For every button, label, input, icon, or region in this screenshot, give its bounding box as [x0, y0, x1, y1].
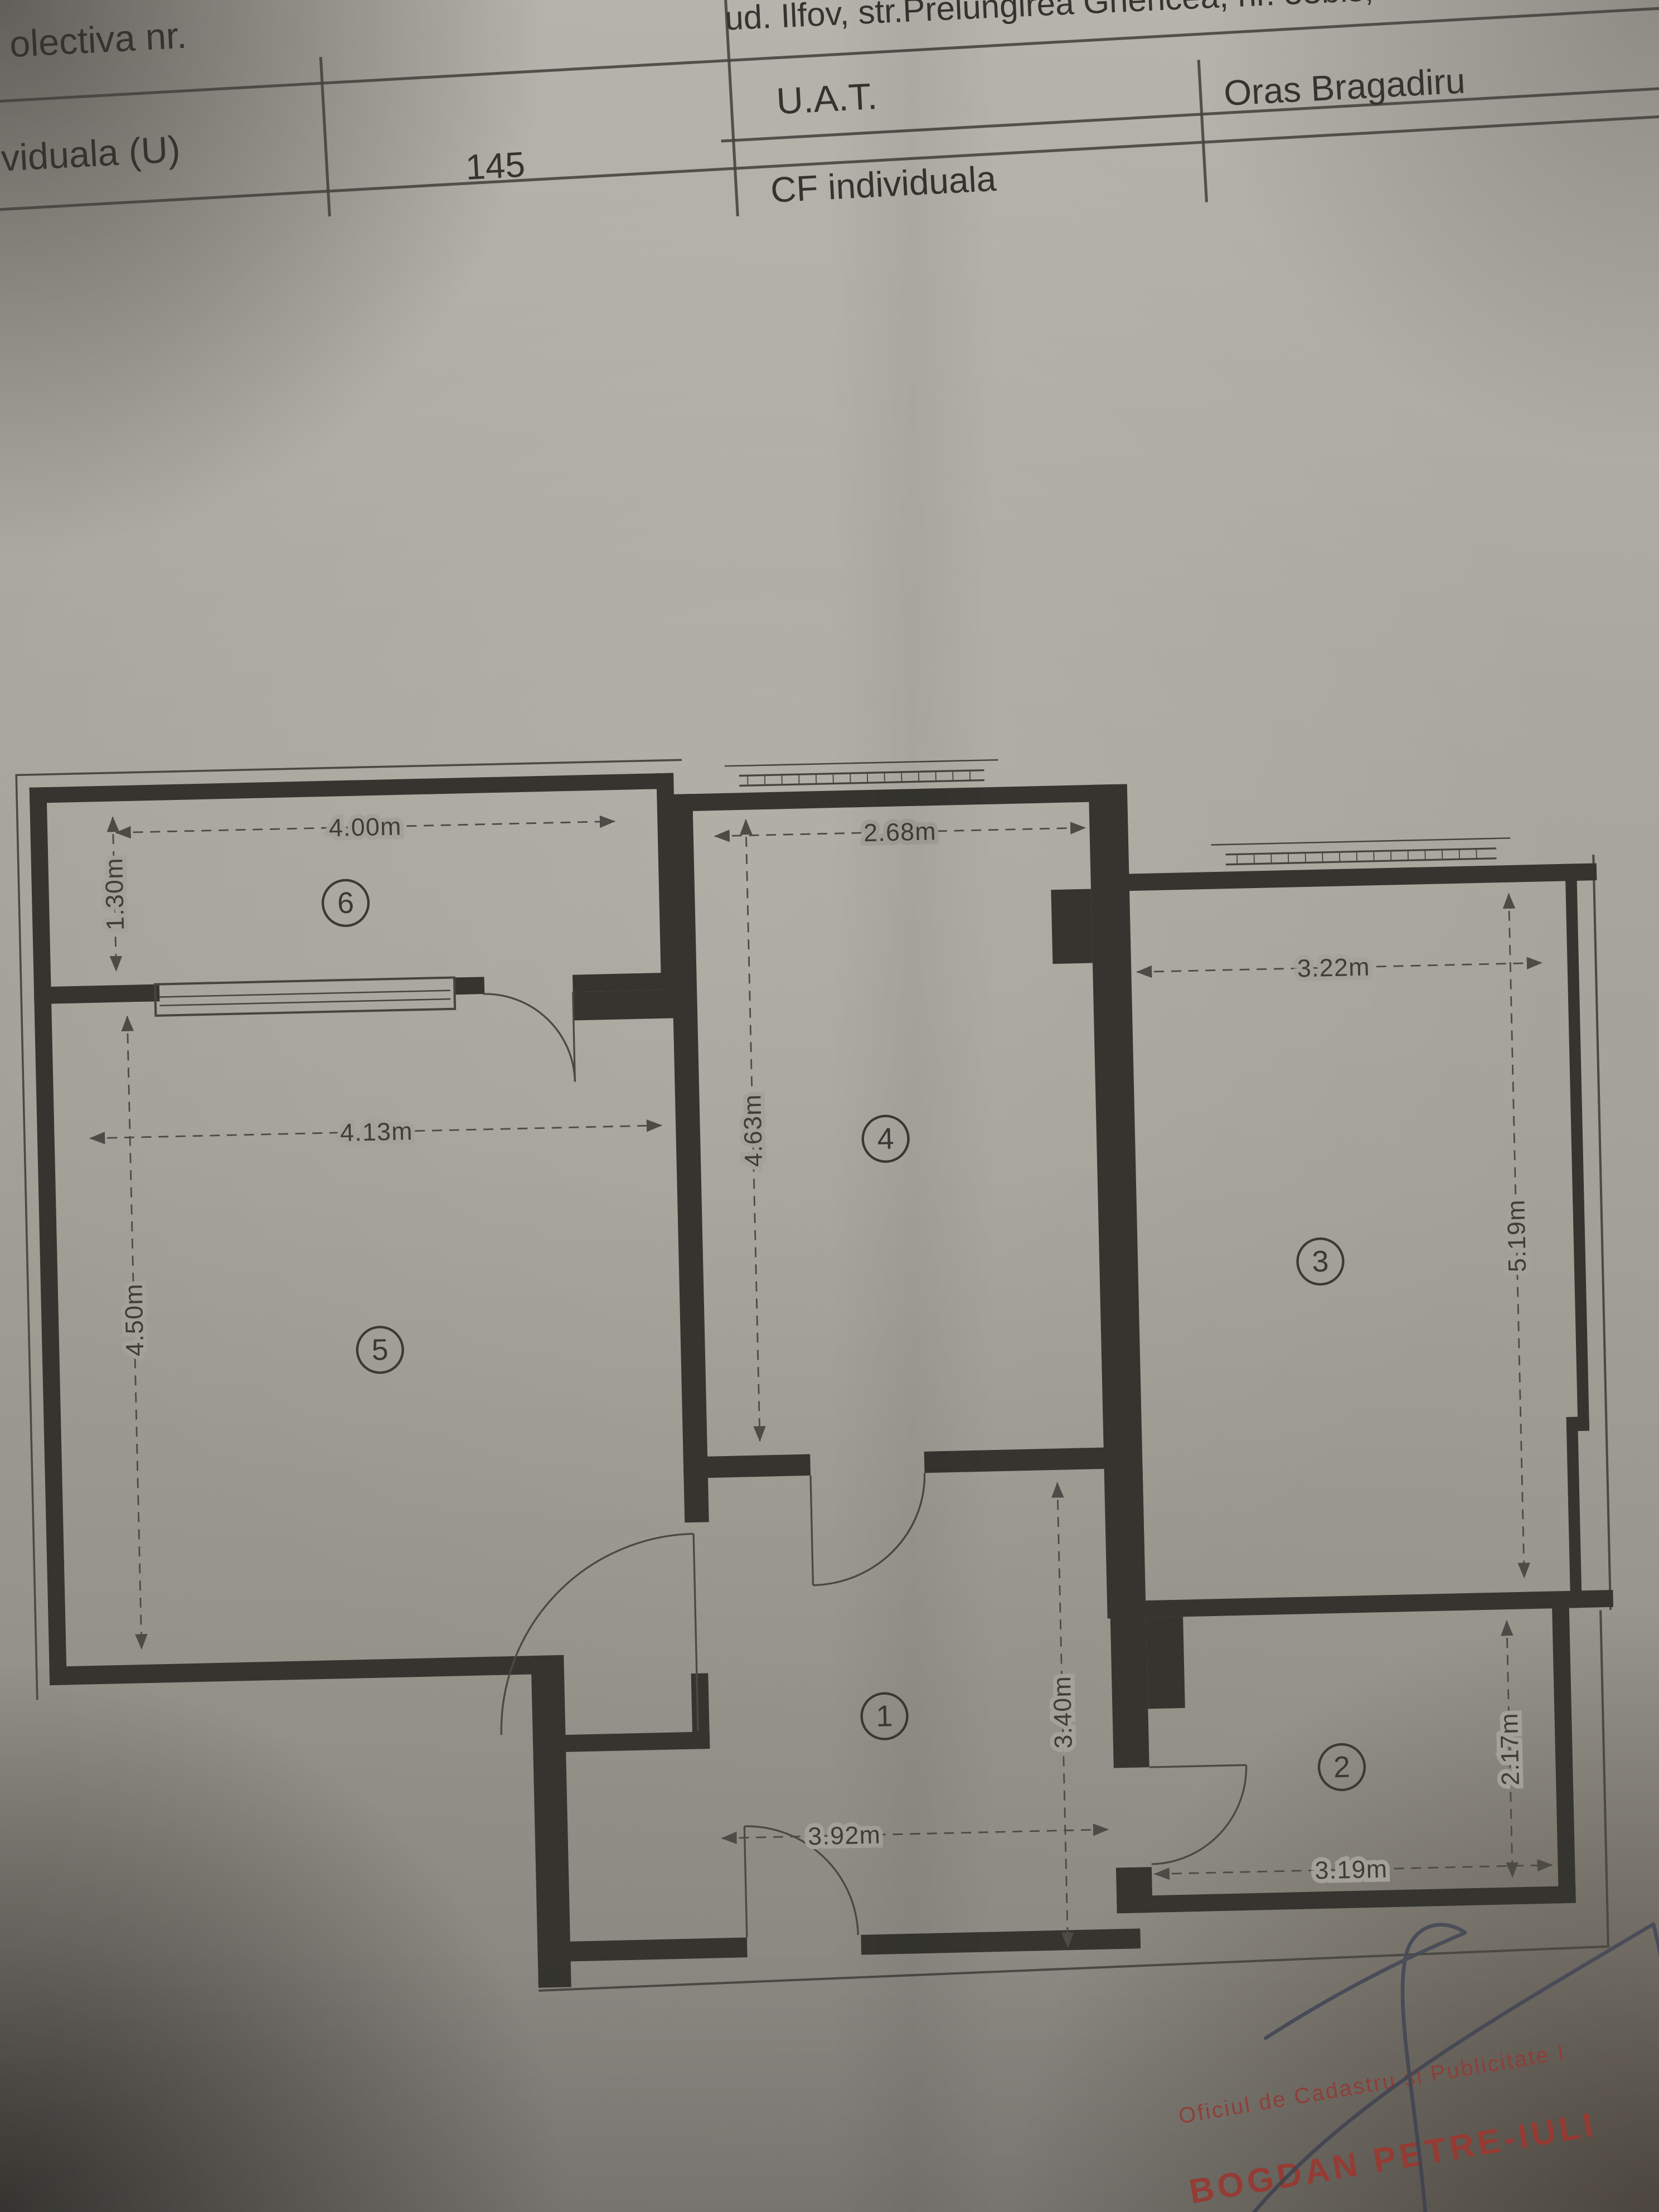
room2-door	[1149, 1765, 1249, 1864]
dim-label-room3-width: 3.22m	[1297, 953, 1370, 982]
wall-segment	[924, 1447, 1128, 1473]
wall-segment	[683, 1454, 811, 1479]
dim-label-room3-depth: 5.19m	[1502, 1199, 1531, 1273]
dim-label-room2-depth: 2.17m	[1495, 1713, 1525, 1786]
signature-stroke	[1653, 1924, 1659, 2152]
wall-segment	[454, 977, 484, 995]
dim-label-room4-depth: 4.63m	[738, 1094, 768, 1167]
wall-segment	[1552, 1608, 1576, 1904]
room-label-1: 1	[861, 1693, 908, 1740]
svg-text:3: 3	[1312, 1245, 1329, 1279]
wall-segment	[1146, 1617, 1185, 1709]
room-label-3: 3	[1297, 1238, 1344, 1285]
room-label-2: 2	[1318, 1744, 1365, 1791]
wall-segment	[861, 1928, 1141, 1954]
room-label-4: 4	[862, 1115, 909, 1162]
wall-segment	[1565, 864, 1589, 1428]
svg-text:1: 1	[876, 1699, 893, 1733]
stamp-name-line: BOGDAN PETRE-IULI	[1186, 2105, 1599, 2211]
wall-segment	[34, 984, 160, 1005]
room4-window	[725, 760, 999, 786]
wall-segment	[531, 1655, 571, 1988]
balcony-door	[483, 992, 575, 1084]
wall-segment	[1115, 863, 1597, 891]
dim-label-room5-width: 4.13m	[339, 1117, 413, 1147]
wall-segment	[542, 1938, 748, 1962]
room3-window	[1211, 838, 1511, 865]
room-label-6: 6	[322, 880, 369, 926]
wall-segment	[691, 1673, 710, 1749]
floor-plan-drawing: 4.00m 1.30m 2.68m 3.22m 4.13m 4.63m 4.50…	[0, 0, 1659, 2212]
dim-label-balcony-depth: 1.30m	[100, 857, 129, 931]
svg-text:2: 2	[1333, 1750, 1350, 1784]
svg-text:4: 4	[877, 1122, 894, 1156]
svg-text:6: 6	[337, 886, 354, 920]
room5-door	[497, 1534, 698, 1735]
plan-group: 4.00m 1.30m 2.68m 3.22m 4.13m 4.63m 4.50…	[16, 739, 1621, 2002]
photographed-cadastral-document: ud. Ilfov, str.Prelungirea Ghencea, nr. …	[0, 0, 1659, 2212]
room-label-5: 5	[357, 1327, 404, 1374]
wall-segment	[1117, 1886, 1576, 1913]
dim-label-room5-depth: 4.50m	[119, 1283, 149, 1357]
wall-segment	[1107, 1468, 1149, 1768]
room4-door	[811, 1473, 927, 1585]
wall-segment	[1131, 1590, 1613, 1618]
wall-segment	[49, 1655, 552, 1685]
wall-segment	[1566, 1428, 1582, 1608]
wall-segment	[668, 794, 709, 1522]
dim-label-hall-width: 3.92m	[808, 1821, 881, 1850]
wall-segment	[30, 773, 674, 803]
wall-segment	[1051, 889, 1093, 964]
signature-stroke	[1265, 1933, 1465, 2038]
dimension-labels: 4.00m 1.30m 2.68m 3.22m 4.13m 4.63m 4.50…	[99, 787, 1545, 1912]
balcony-window	[155, 978, 455, 1016]
walls	[30, 752, 1622, 1998]
dim-label-balcony-width: 4.00m	[328, 812, 402, 842]
stamp-office-line: Oficiul de Cadastru şi Publicitate I	[1177, 2040, 1567, 2128]
wall-segment	[30, 787, 67, 1685]
dim-label-hall-depth: 3.40m	[1048, 1675, 1078, 1749]
wall-segment	[554, 1731, 710, 1752]
dim-label-room2-width: 3.19m	[1314, 1855, 1388, 1885]
wall-segment	[573, 989, 679, 1020]
registry-stamp: Oficiul de Cadastru şi Publicitate I BOG…	[1177, 2040, 1599, 2211]
wall-segment	[668, 784, 1113, 812]
svg-text:5: 5	[371, 1333, 389, 1367]
dim-label-room4-width: 2.68m	[864, 817, 937, 847]
